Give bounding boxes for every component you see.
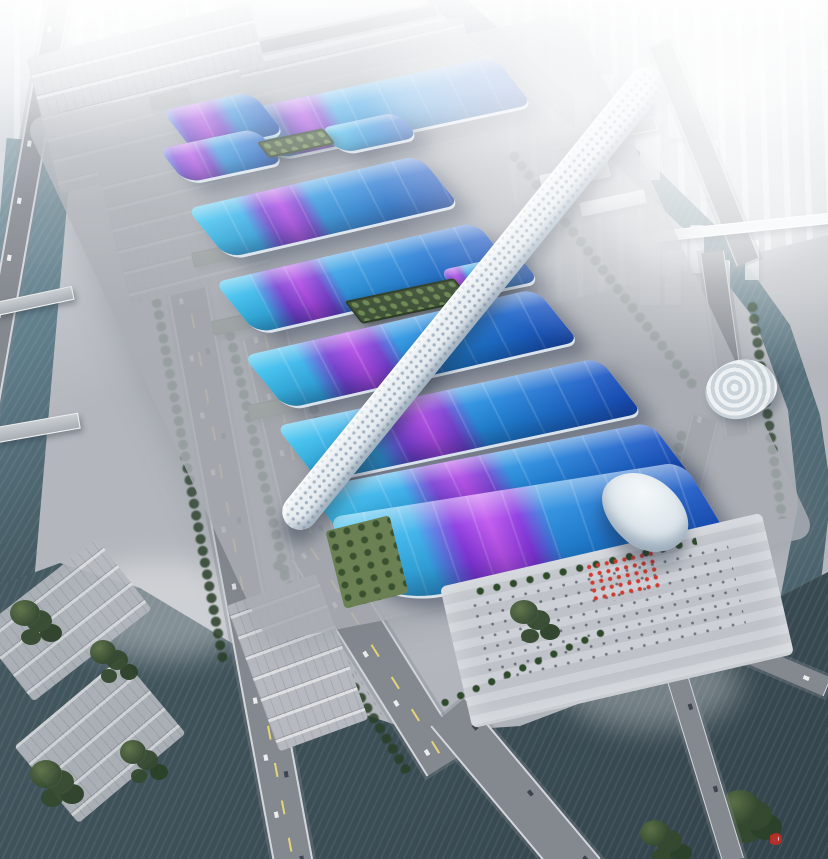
plaza-garden-trees [510, 600, 538, 624]
watermark-glyph [770, 835, 778, 844]
park-trees [30, 760, 62, 788]
aerial-rendering: D [0, 0, 828, 859]
riverbank-trees-southeast-2 [640, 820, 670, 846]
watermark: D [770, 833, 782, 845]
park-trees [90, 640, 116, 664]
park-trees [120, 740, 146, 764]
park-trees [10, 600, 40, 626]
